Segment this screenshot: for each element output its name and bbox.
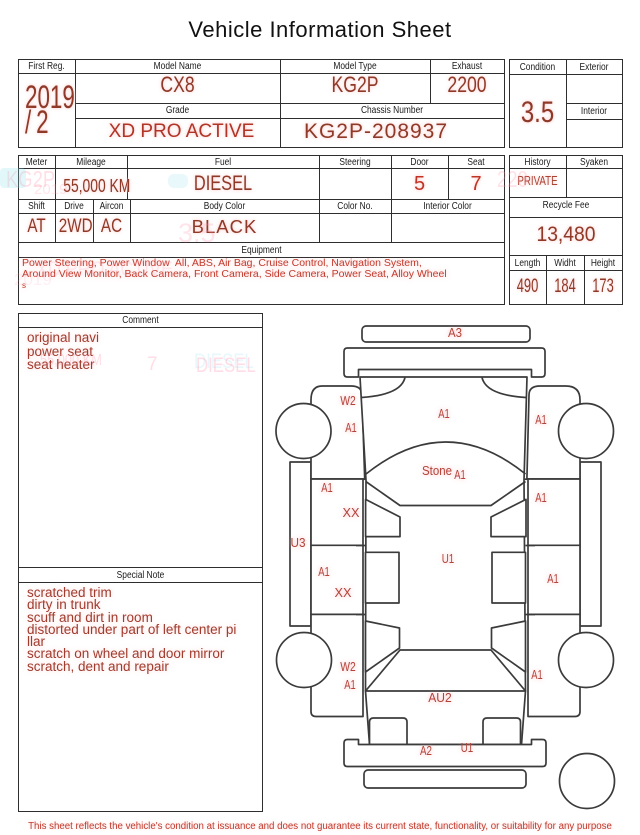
svg-text:AU2: AU2 <box>428 691 452 705</box>
svg-text:XX: XX <box>335 586 353 600</box>
svg-text:XX: XX <box>343 506 361 520</box>
svg-text:Stone: Stone <box>422 464 452 478</box>
svg-text:U3: U3 <box>291 536 306 550</box>
svg-text:A2: A2 <box>420 744 432 758</box>
svg-text:A1: A1 <box>535 413 547 427</box>
svg-text:A1: A1 <box>345 421 357 435</box>
svg-text:A1: A1 <box>535 491 547 505</box>
svg-text:A1: A1 <box>547 572 559 586</box>
svg-text:A1: A1 <box>531 668 543 682</box>
svg-text:W2: W2 <box>340 660 356 674</box>
svg-text:A1: A1 <box>344 678 356 692</box>
svg-text:A1: A1 <box>318 565 330 579</box>
svg-text:W2: W2 <box>340 394 356 408</box>
svg-text:A1: A1 <box>321 481 333 495</box>
svg-text:U1: U1 <box>461 741 474 755</box>
svg-text:U1: U1 <box>442 552 455 566</box>
svg-text:A1: A1 <box>454 468 466 482</box>
svg-text:A3: A3 <box>448 326 462 340</box>
svg-text:A1: A1 <box>438 407 450 421</box>
